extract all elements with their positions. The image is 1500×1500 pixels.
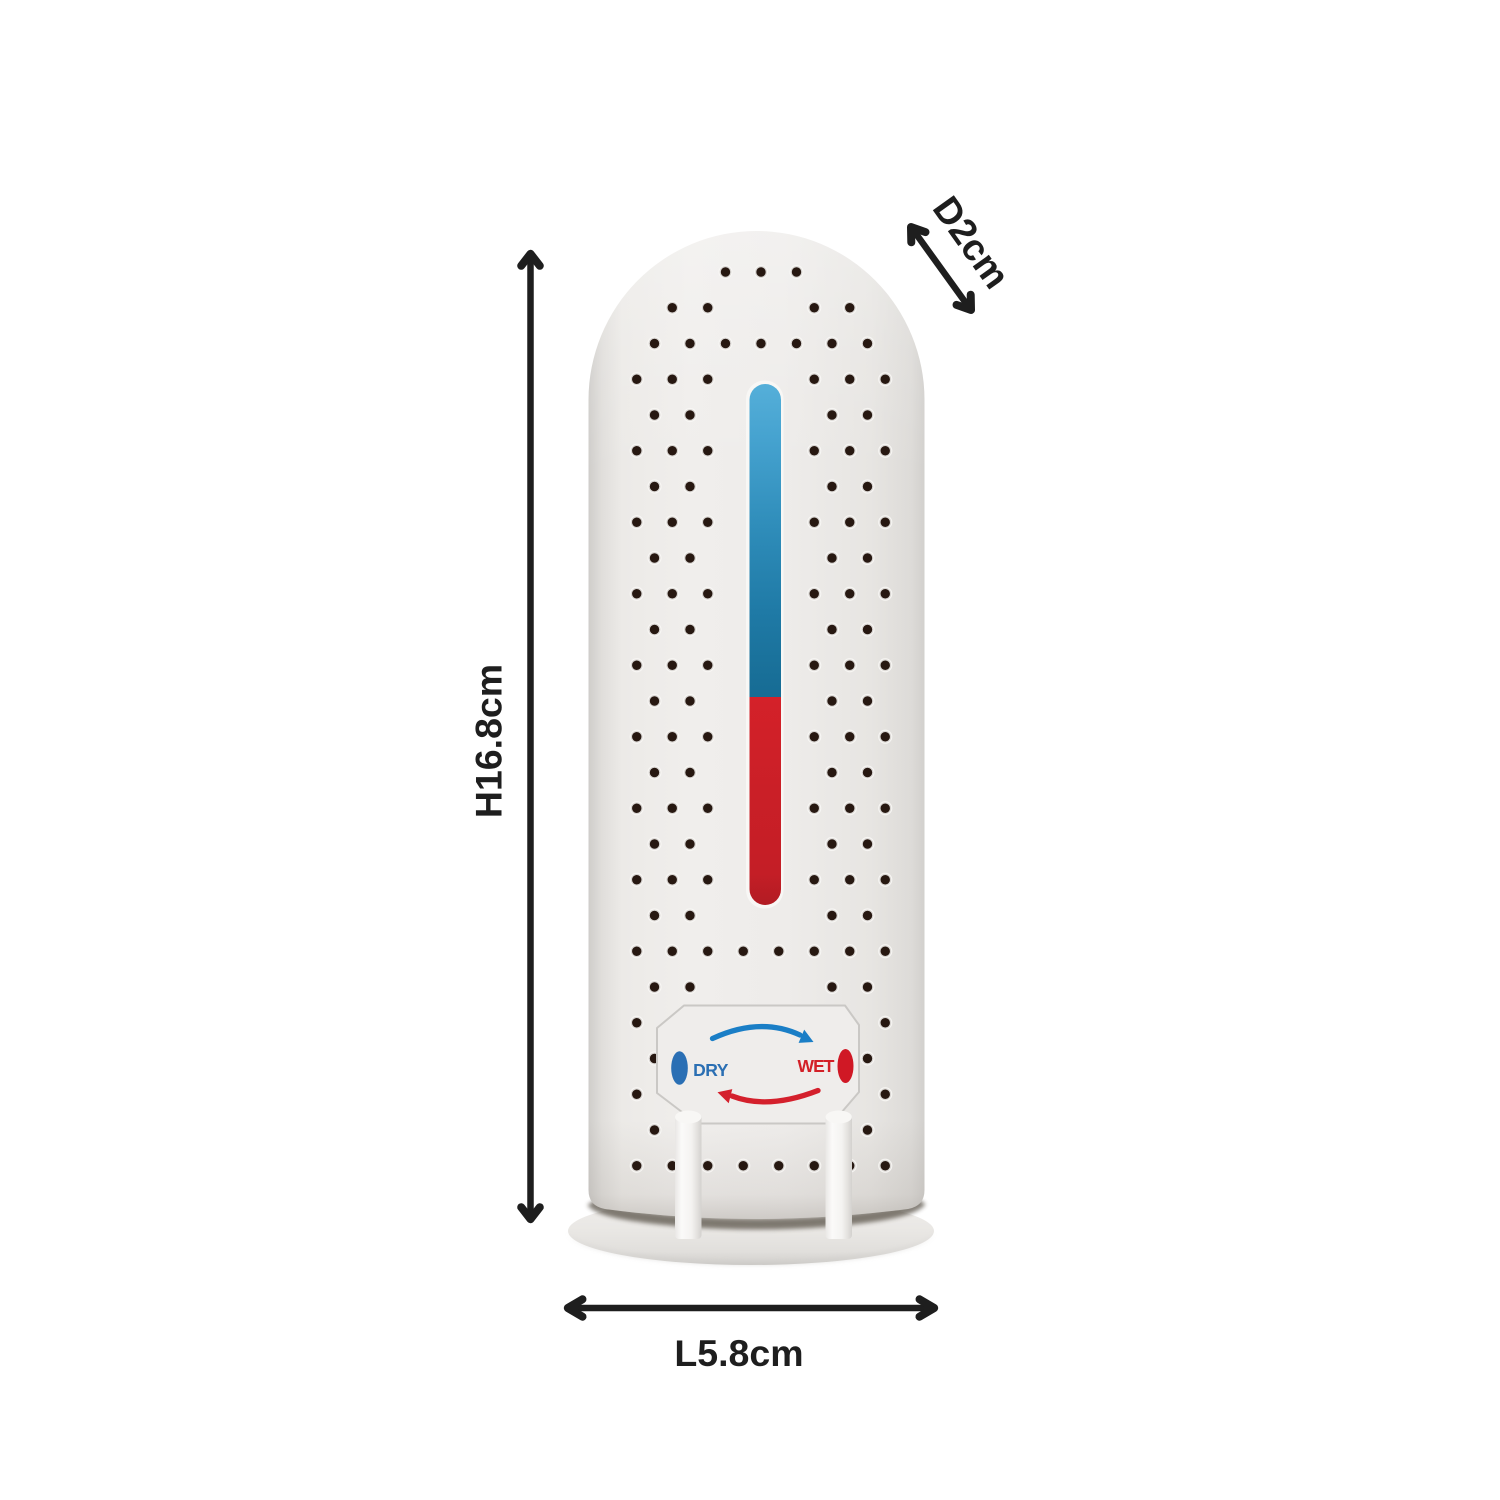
svg-text:L5.8cm: L5.8cm — [674, 1332, 803, 1374]
svg-text:WET: WET — [798, 1056, 835, 1076]
svg-text:H16.8cm: H16.8cm — [468, 664, 510, 818]
svg-text:DRY: DRY — [693, 1060, 729, 1080]
